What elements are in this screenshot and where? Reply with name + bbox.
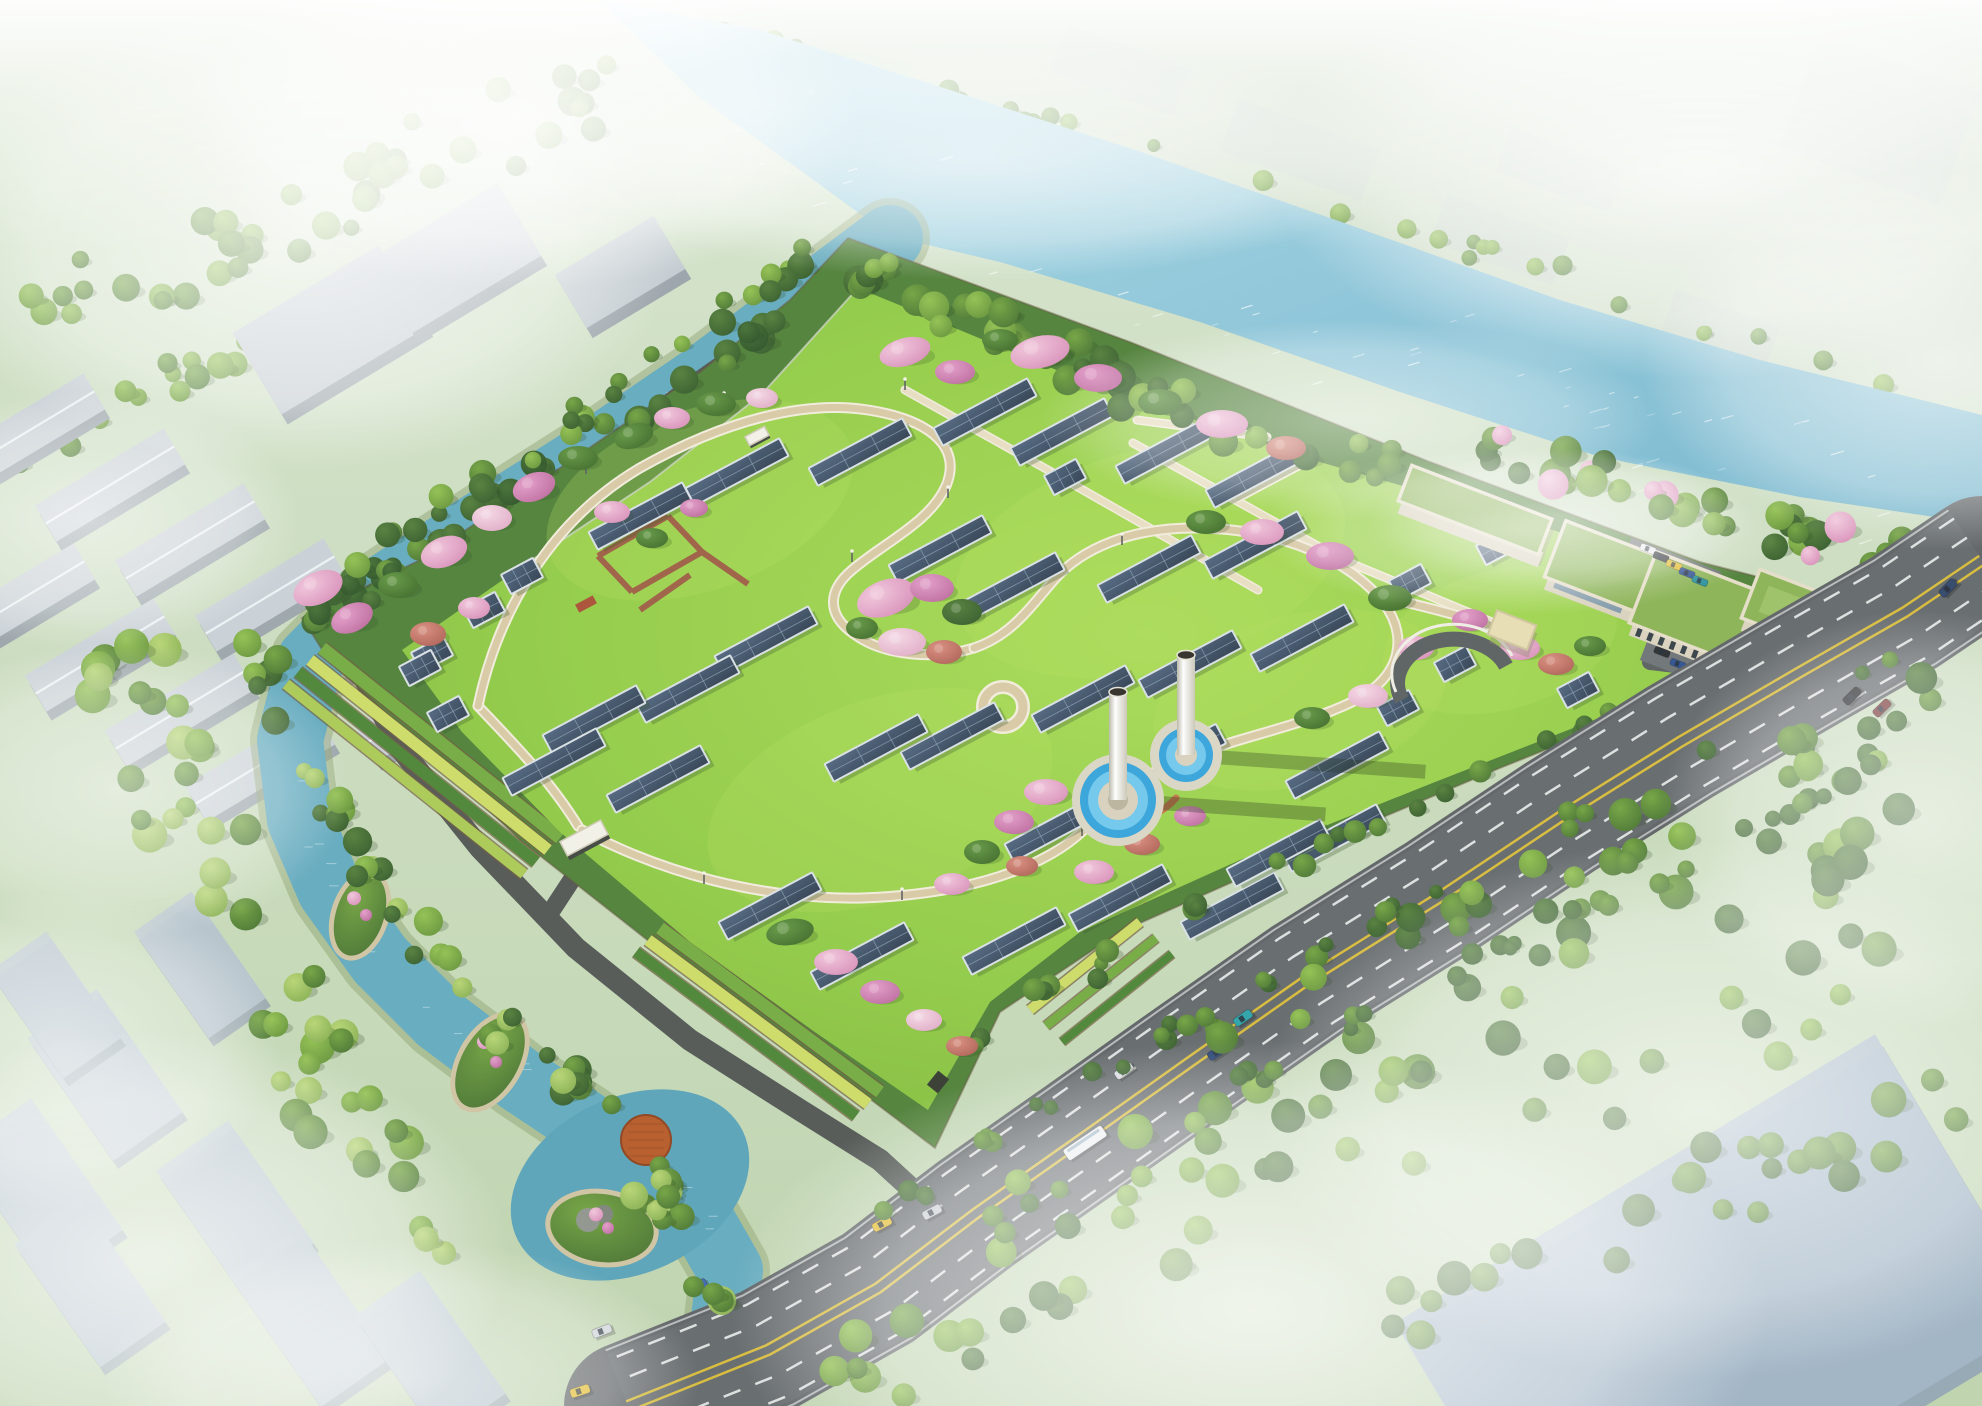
top-haze-band (0, 0, 1982, 250)
fog-patch (1370, 450, 1750, 590)
layer-fog (0, 0, 1982, 1406)
aerial-park-rendering: Aerial architectural rendering of a larg… (0, 0, 1982, 1406)
rendering-stage: Aerial architectural rendering of a larg… (0, 0, 1982, 1406)
